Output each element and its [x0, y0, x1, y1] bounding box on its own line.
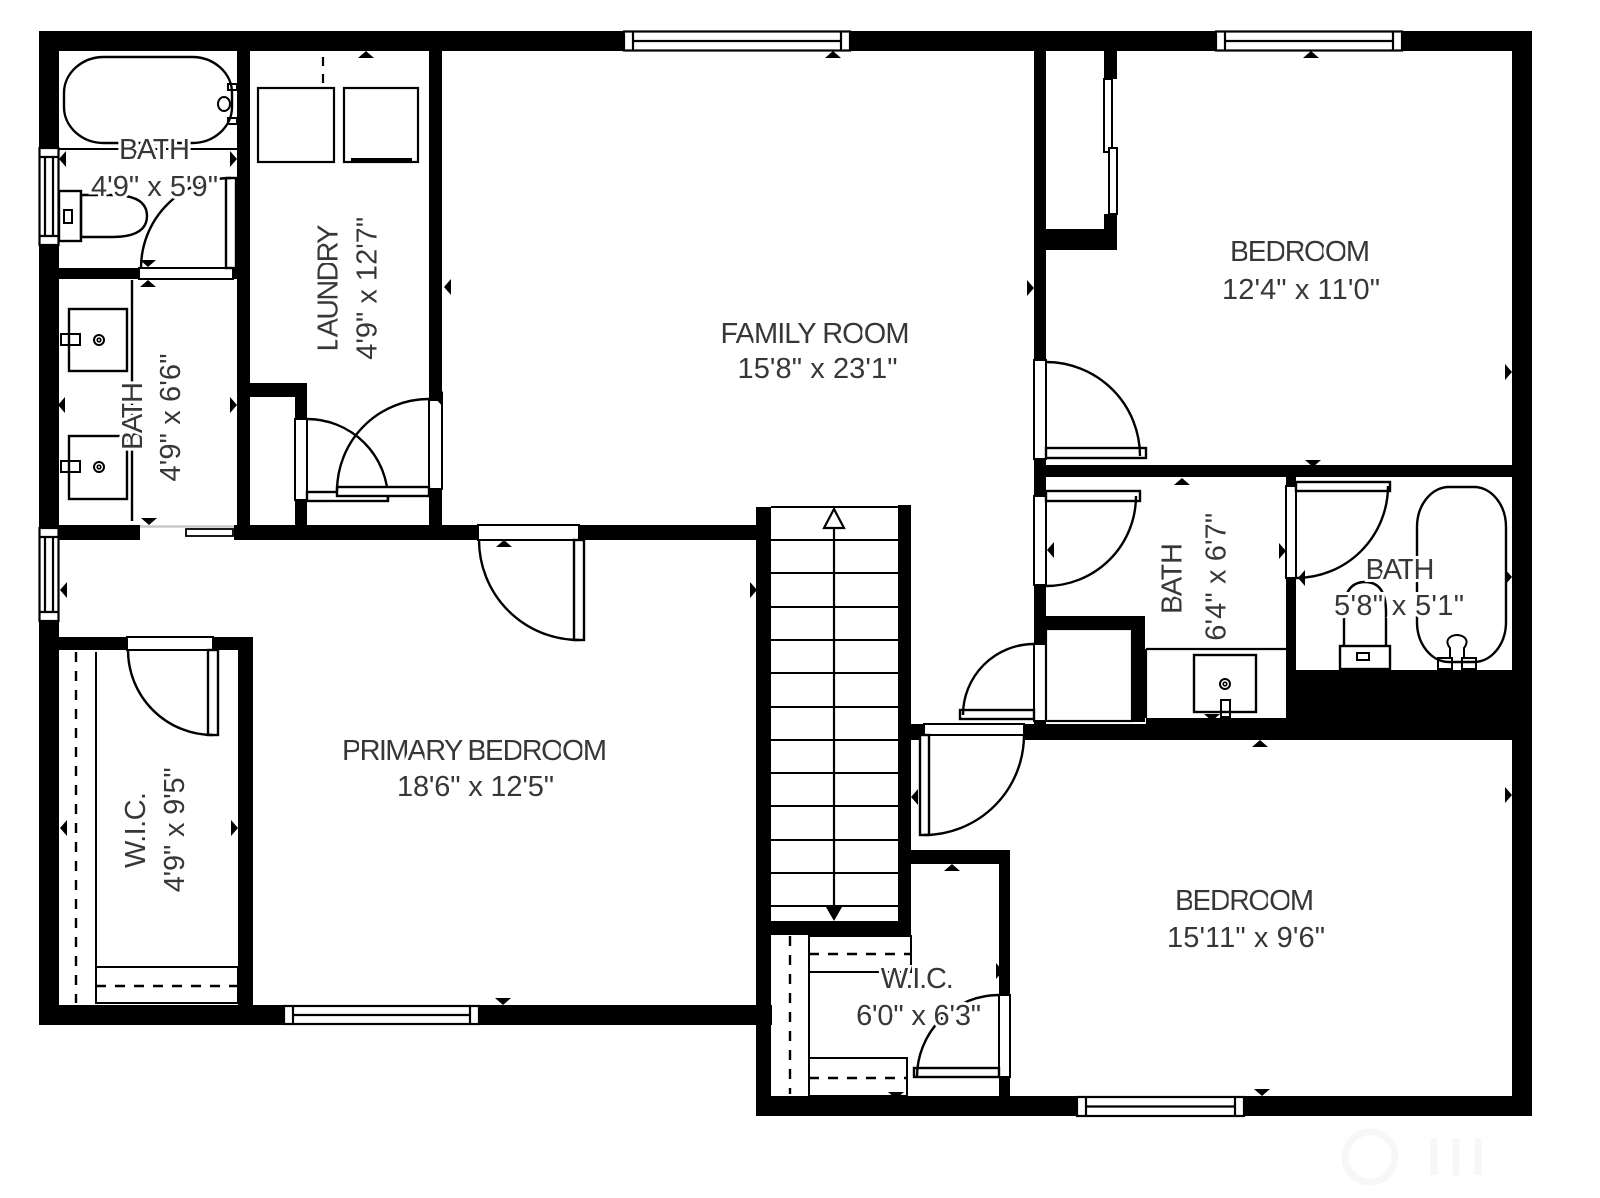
svg-text:18'6" x 12'5": 18'6" x 12'5" — [397, 771, 554, 803]
svg-text:BEDROOM: BEDROOM — [1175, 885, 1314, 917]
svg-text:BATH: BATH — [1366, 554, 1435, 586]
svg-text:W.I.C.: W.I.C. — [881, 963, 954, 995]
svg-text:15'8" x 23'1": 15'8" x 23'1" — [738, 353, 898, 385]
svg-text:FAMILY ROOM: FAMILY ROOM — [721, 318, 910, 350]
svg-text:5'8" x 5'1": 5'8" x 5'1" — [1334, 590, 1464, 622]
svg-text:15'11" x 9'6": 15'11" x 9'6" — [1167, 922, 1325, 954]
svg-text:BEDROOM: BEDROOM — [1230, 236, 1370, 268]
svg-text:BATH: BATH — [1156, 543, 1188, 614]
svg-text:BATH: BATH — [119, 134, 190, 166]
svg-text:4'9" x 6'6": 4'9" x 6'6" — [155, 354, 187, 482]
svg-text:12'4" x 11'0": 12'4" x 11'0" — [1222, 274, 1380, 306]
svg-text:BATH: BATH — [117, 382, 149, 450]
svg-text:LAUNDRY: LAUNDRY — [313, 225, 345, 352]
svg-text:4'9" x 5'9": 4'9" x 5'9" — [91, 171, 218, 203]
svg-text:W.I.C.: W.I.C. — [120, 792, 152, 868]
svg-text:6'4" x 6'7": 6'4" x 6'7" — [1201, 513, 1233, 641]
svg-text:4'9" x 12'7": 4'9" x 12'7" — [351, 217, 383, 360]
svg-text:PRIMARY BEDROOM: PRIMARY BEDROOM — [342, 735, 607, 767]
svg-text:4'9" x 9'5": 4'9" x 9'5" — [159, 767, 191, 892]
svg-text:6'0" x 6'3": 6'0" x 6'3" — [856, 1000, 981, 1032]
